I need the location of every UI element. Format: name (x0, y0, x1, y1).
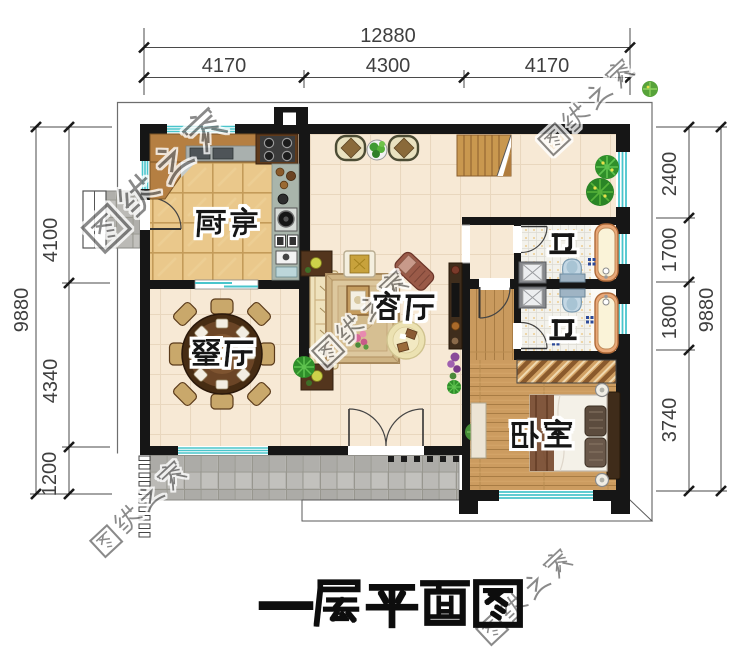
svg-text:4340: 4340 (40, 359, 62, 404)
svg-text:1800: 1800 (659, 295, 681, 340)
svg-text:2400: 2400 (659, 152, 681, 197)
svg-text:4170: 4170 (202, 55, 247, 77)
svg-text:1700: 1700 (659, 228, 681, 273)
svg-text:12880: 12880 (360, 25, 416, 47)
svg-text:9880: 9880 (696, 288, 718, 333)
svg-text:4100: 4100 (40, 218, 62, 263)
svg-text:3740: 3740 (659, 398, 681, 443)
svg-text:4300: 4300 (366, 55, 411, 77)
svg-text:9880: 9880 (11, 288, 33, 333)
svg-text:4170: 4170 (525, 55, 570, 77)
svg-text:1200: 1200 (39, 452, 61, 497)
